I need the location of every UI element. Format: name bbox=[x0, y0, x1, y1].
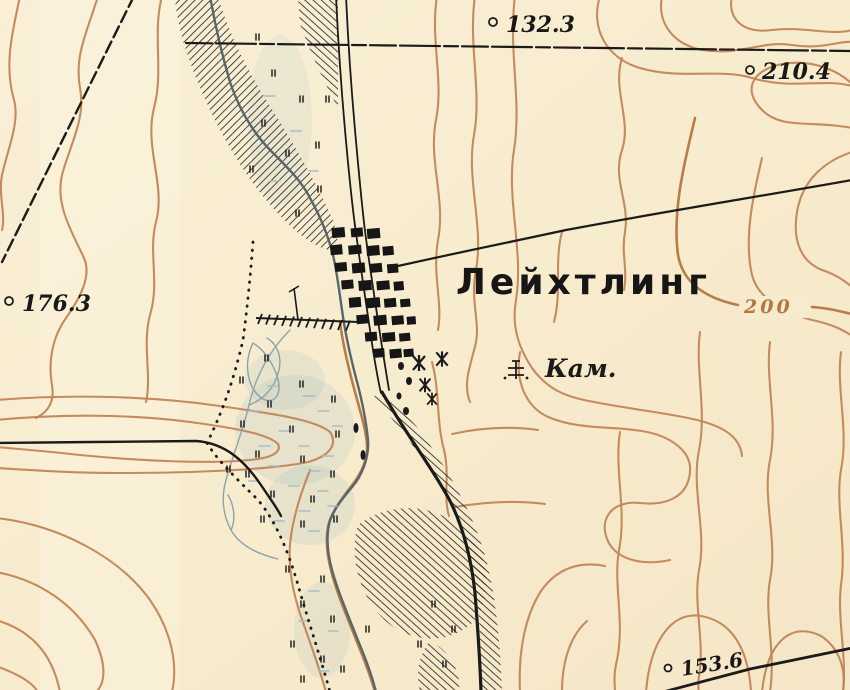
map-canvas: Лейхтлинг Кам. 200 132.3 210.4 176.3 153… bbox=[0, 0, 850, 690]
village-block bbox=[358, 280, 372, 291]
village-block bbox=[370, 263, 383, 273]
village-block bbox=[387, 263, 399, 273]
village-block bbox=[365, 332, 378, 342]
blob bbox=[403, 407, 409, 415]
village-block bbox=[373, 348, 385, 358]
blob bbox=[361, 450, 366, 460]
marsh-wash bbox=[265, 465, 355, 545]
kam-label: Кам. bbox=[544, 354, 616, 383]
village-block bbox=[341, 279, 354, 289]
village-block bbox=[406, 316, 416, 325]
quarry-dot bbox=[504, 377, 507, 380]
village-block bbox=[351, 227, 364, 237]
village-block bbox=[330, 244, 343, 255]
village-block bbox=[348, 245, 362, 255]
village-block bbox=[382, 246, 394, 256]
village-block bbox=[389, 349, 402, 359]
spot-height-marker bbox=[489, 18, 497, 26]
spot-height-label: 210.4 bbox=[761, 59, 831, 85]
village-block bbox=[393, 281, 404, 291]
spot-height-marker bbox=[5, 297, 13, 305]
spot-height-label: 176.3 bbox=[22, 291, 91, 317]
paper-tone-band bbox=[40, 0, 180, 690]
spot-height-marker bbox=[665, 665, 672, 672]
village-block bbox=[403, 348, 414, 357]
village-block bbox=[400, 299, 411, 308]
village-block bbox=[382, 332, 396, 342]
village-block bbox=[331, 227, 345, 238]
village-block bbox=[391, 315, 404, 325]
village-block bbox=[399, 333, 411, 342]
village-block bbox=[373, 315, 387, 326]
settlement-name-label: Лейхтлинг bbox=[456, 262, 711, 303]
spot-height-label: 132.3 bbox=[506, 12, 575, 38]
village-block bbox=[376, 280, 390, 290]
village-block bbox=[356, 314, 369, 324]
spot-height-marker bbox=[746, 66, 754, 74]
blob bbox=[354, 423, 359, 433]
contour-elevation-label: 200 bbox=[743, 296, 793, 318]
blob bbox=[398, 362, 404, 370]
village-block bbox=[366, 297, 381, 308]
village-block bbox=[352, 262, 366, 273]
blob bbox=[406, 377, 412, 385]
village-block bbox=[366, 245, 380, 256]
village-block bbox=[367, 228, 381, 239]
village-block bbox=[384, 298, 397, 308]
blob bbox=[397, 393, 402, 400]
quarry-dot bbox=[526, 377, 529, 380]
village-block bbox=[335, 262, 348, 272]
topographic-map: Лейхтлинг Кам. 200 132.3 210.4 176.3 153… bbox=[0, 0, 850, 690]
village-block bbox=[349, 297, 362, 308]
